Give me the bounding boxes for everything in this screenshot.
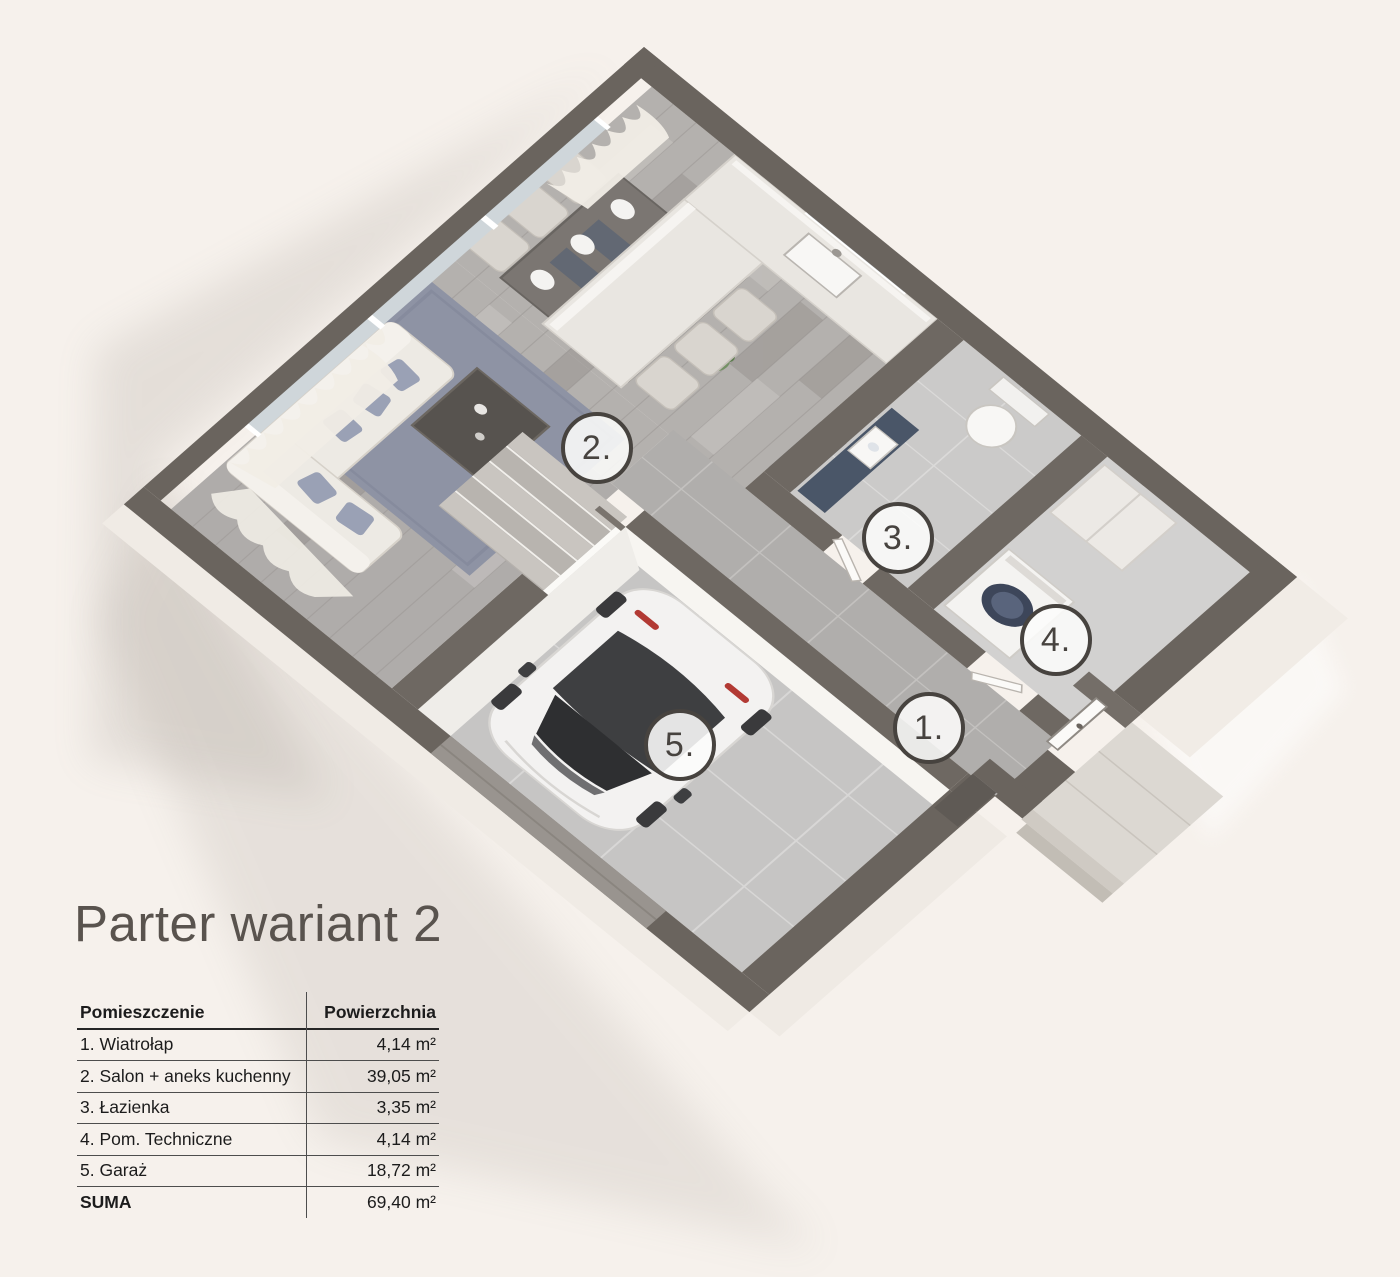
page-title: Parter wariant 2	[74, 894, 442, 953]
table-row: 2. Salon + aneks kuchenny 39,05 m²	[77, 1061, 439, 1093]
room-badge-4: 4.	[1020, 604, 1092, 676]
row-room: 3. Łazienka	[80, 1097, 170, 1118]
room-badge-5-label: 5.	[665, 726, 695, 765]
table-total-row: SUMA 69,40 m²	[77, 1187, 439, 1218]
areas-table: Pomieszczenie Powierzchnia 1. Wiatrołap …	[77, 997, 439, 1218]
row-room: 1. Wiatrołap	[80, 1034, 173, 1055]
header-room: Pomieszczenie	[80, 1002, 205, 1023]
table-row: 1. Wiatrołap 4,14 m²	[77, 1030, 439, 1062]
row-area: 4,14 m²	[377, 1034, 436, 1055]
header-area: Powierzchnia	[324, 1002, 436, 1023]
room-badge-5: 5.	[644, 709, 716, 781]
room-badge-3: 3.	[862, 502, 934, 574]
room-badge-1-label: 1.	[914, 709, 944, 748]
row-room: 2. Salon + aneks kuchenny	[80, 1066, 291, 1087]
row-area: 39,05 m²	[367, 1066, 436, 1087]
row-room: 5. Garaż	[80, 1160, 147, 1181]
row-area: 3,35 m²	[377, 1097, 436, 1118]
row-room: 4. Pom. Techniczne	[80, 1129, 232, 1150]
table-row: 4. Pom. Techniczne 4,14 m²	[77, 1124, 439, 1156]
room-badge-2-label: 2.	[582, 429, 612, 468]
page: 1. 2. 3. 4. 5. Parter wariant 2 Pomieszc…	[0, 0, 1400, 1277]
row-area: 4,14 m²	[377, 1129, 436, 1150]
total-label: SUMA	[80, 1192, 132, 1213]
room-badge-1: 1.	[893, 692, 965, 764]
room-badge-3-label: 3.	[883, 519, 913, 558]
table-column-divider	[306, 992, 307, 1218]
room-badge-4-label: 4.	[1041, 621, 1071, 660]
room-badge-2: 2.	[561, 412, 633, 484]
row-area: 18,72 m²	[367, 1160, 436, 1181]
table-row: 3. Łazienka 3,35 m²	[77, 1093, 439, 1125]
total-area: 69,40 m²	[367, 1192, 436, 1213]
table-header-row: Pomieszczenie Powierzchnia	[77, 997, 439, 1030]
table-row: 5. Garaż 18,72 m²	[77, 1156, 439, 1188]
